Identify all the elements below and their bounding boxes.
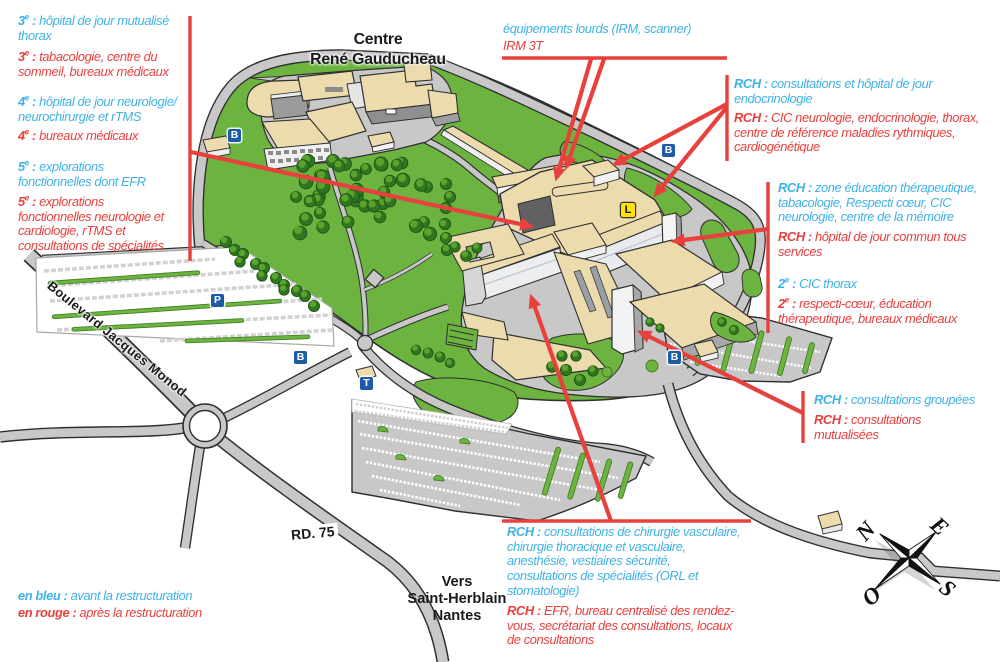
svg-text:S: S	[935, 575, 961, 602]
svg-text:E: E	[925, 511, 954, 541]
